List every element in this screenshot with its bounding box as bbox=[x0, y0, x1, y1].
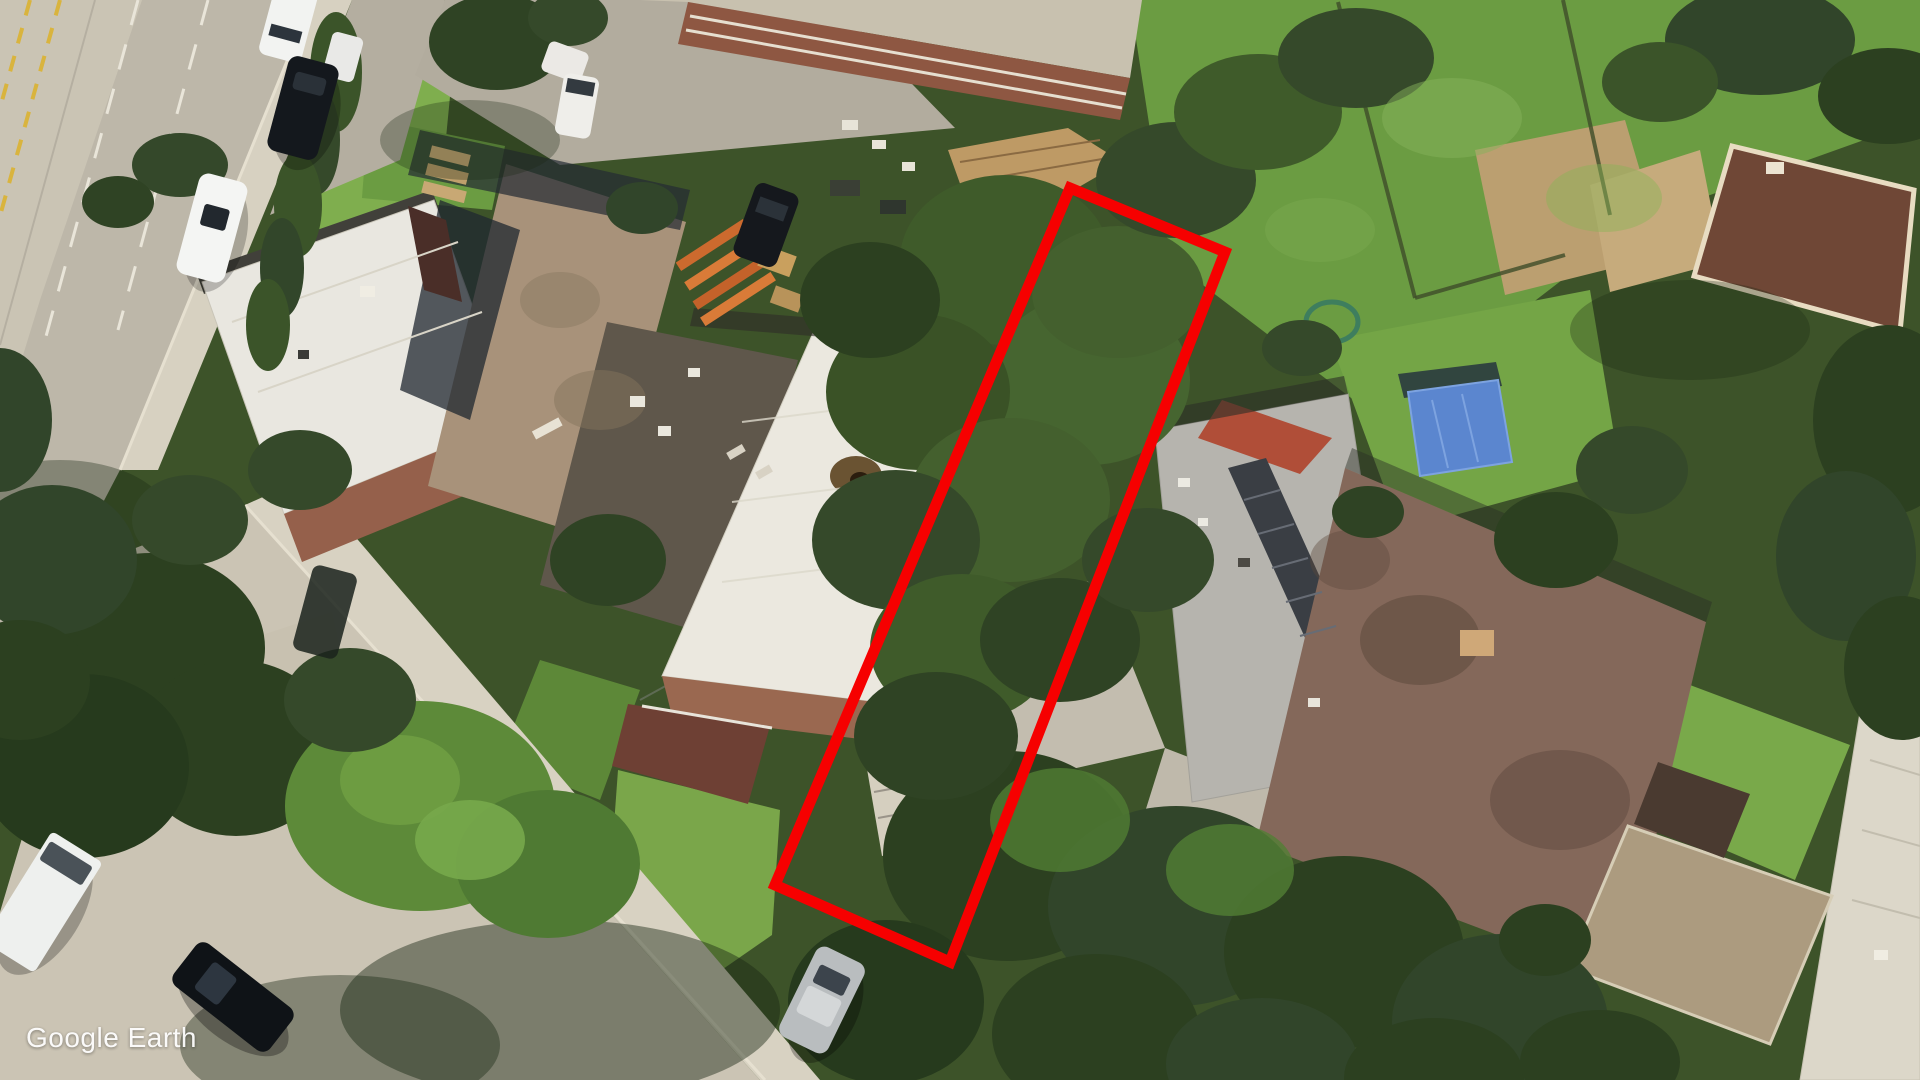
google-earth-watermark: Google Earth bbox=[26, 1022, 197, 1054]
tree-canopy bbox=[1032, 226, 1204, 358]
tree-canopy bbox=[1166, 824, 1294, 916]
rooftop-vent bbox=[1308, 698, 1320, 707]
weed-patch bbox=[1546, 164, 1662, 232]
weed-patch bbox=[1265, 198, 1375, 262]
bush bbox=[550, 514, 666, 606]
rooftop-shed-box bbox=[1460, 630, 1494, 656]
construction-clutter bbox=[902, 162, 915, 171]
tree-canopy bbox=[1602, 42, 1718, 122]
rooftop-ac-unit bbox=[1198, 518, 1208, 526]
rooftop-vent bbox=[298, 350, 309, 359]
rooftop-ac-unit bbox=[630, 396, 645, 407]
aerial-scene bbox=[0, 0, 1920, 1080]
construction-clutter bbox=[842, 120, 858, 130]
construction-clutter bbox=[872, 140, 886, 149]
tree-canopy bbox=[415, 800, 525, 880]
tree-canopy bbox=[1576, 426, 1688, 514]
rooftop-ac-unit bbox=[1874, 950, 1888, 960]
roof-stain bbox=[520, 272, 600, 328]
tree-canopy bbox=[132, 475, 248, 565]
roof-stain bbox=[1490, 750, 1630, 850]
tree-canopy bbox=[248, 430, 352, 510]
blue-tarp bbox=[1408, 380, 1512, 476]
tree-canopy bbox=[1499, 904, 1591, 976]
rooftop-ac-unit bbox=[658, 426, 671, 436]
tree-shadow bbox=[380, 100, 560, 180]
tree-canopy bbox=[284, 648, 416, 752]
tree-canopy bbox=[606, 182, 678, 234]
rooftop-ac-unit bbox=[360, 286, 375, 297]
tree-canopy bbox=[82, 176, 154, 228]
construction-clutter bbox=[830, 180, 860, 196]
tree-canopy bbox=[990, 768, 1130, 872]
tree-shadow bbox=[1570, 280, 1810, 380]
tree-canopy bbox=[854, 672, 1018, 800]
hedge bbox=[246, 279, 290, 371]
bush bbox=[1332, 486, 1404, 538]
rooftop-ac-unit bbox=[1178, 478, 1190, 487]
rooftop-ac-unit bbox=[1766, 162, 1784, 174]
tree-canopy bbox=[1494, 492, 1618, 588]
rooftop-ac-unit bbox=[688, 368, 700, 377]
roof-stain bbox=[1310, 530, 1390, 590]
rooftop-vent bbox=[1238, 558, 1250, 567]
weed-patch bbox=[1382, 78, 1522, 158]
construction-clutter bbox=[880, 200, 906, 214]
google-earth-viewport: Google Earth bbox=[0, 0, 1920, 1080]
bush bbox=[1262, 320, 1342, 376]
tree-canopy bbox=[800, 242, 940, 358]
